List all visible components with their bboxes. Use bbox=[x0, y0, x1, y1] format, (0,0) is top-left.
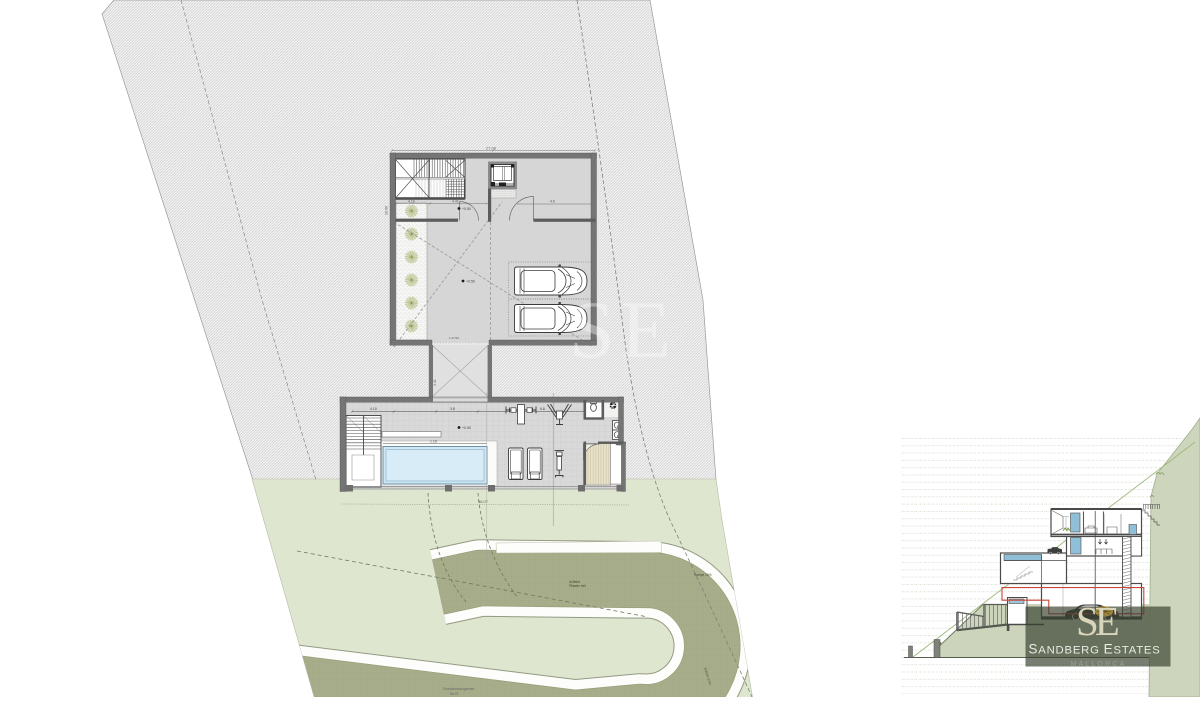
svg-text:56.07: 56.07 bbox=[450, 692, 459, 696]
svg-text:3.8: 3.8 bbox=[450, 407, 455, 411]
svg-text:SANDBERG ESTATES: SANDBERG ESTATES bbox=[1028, 642, 1160, 657]
svg-text:+0.50: +0.50 bbox=[462, 207, 471, 211]
svg-text:+0.50: +0.50 bbox=[466, 280, 475, 284]
svg-text:+0.50: +0.50 bbox=[462, 426, 471, 430]
svg-text:Pflaster hell: Pflaster hell bbox=[569, 584, 586, 588]
svg-text:6.8: 6.8 bbox=[540, 407, 545, 411]
svg-text:Grundstuecksgrenze: Grundstuecksgrenze bbox=[443, 687, 474, 691]
svg-text:4.10: 4.10 bbox=[370, 407, 377, 411]
svg-text:4.6: 4.6 bbox=[550, 200, 555, 204]
svg-text:SE: SE bbox=[569, 284, 677, 375]
svg-text:1.18: 1.18 bbox=[430, 440, 437, 444]
svg-text:46.07: 46.07 bbox=[478, 499, 489, 504]
svg-text:SE: SE bbox=[1076, 598, 1118, 644]
svg-text:1.47/10: 1.47/10 bbox=[449, 336, 459, 340]
svg-text:Rampe 15%: Rampe 15% bbox=[694, 573, 712, 577]
svg-text:20.60: 20.60 bbox=[385, 206, 389, 215]
svg-text:4.16: 4.16 bbox=[408, 200, 415, 204]
svg-text:27.08: 27.08 bbox=[486, 146, 497, 151]
svg-text:MALLORCA: MALLORCA bbox=[1070, 661, 1126, 668]
svg-text:4.41: 4.41 bbox=[452, 200, 459, 204]
svg-text:4.41: 4.41 bbox=[433, 379, 437, 386]
